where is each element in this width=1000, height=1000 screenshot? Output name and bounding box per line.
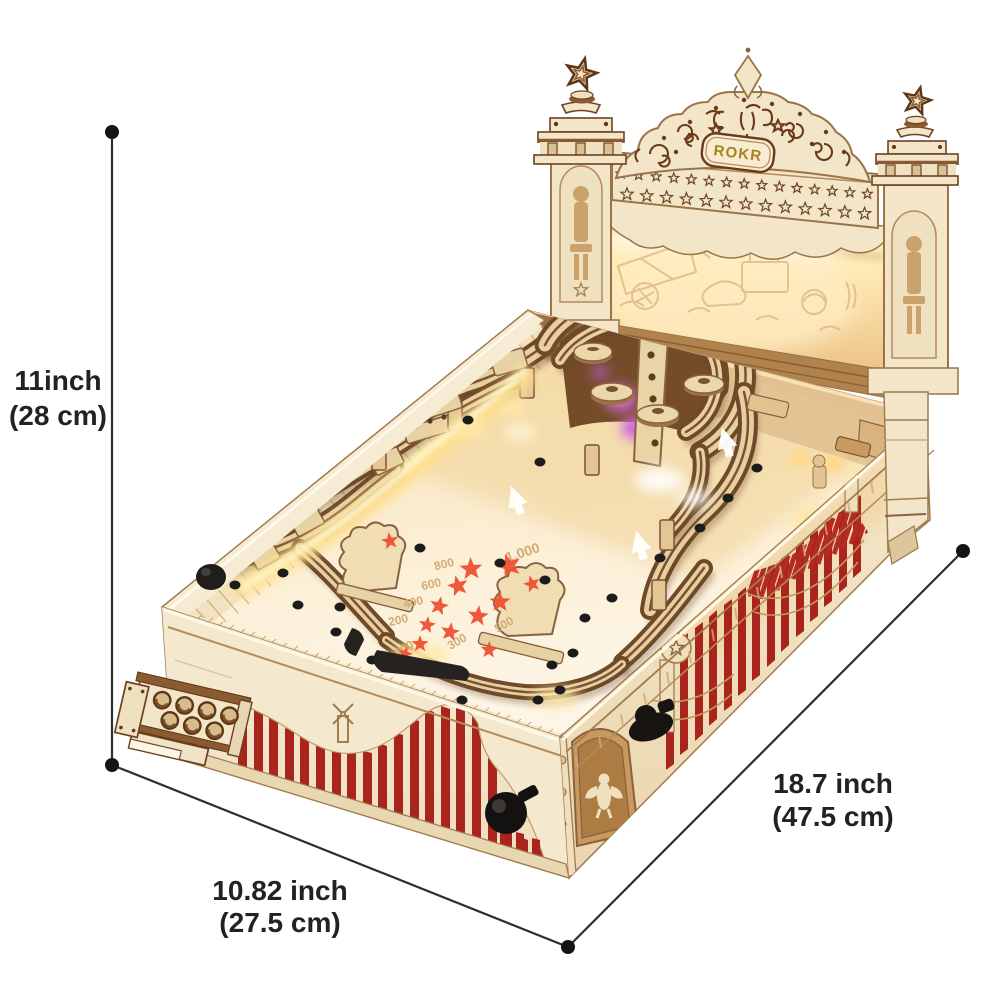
svg-text:18.7 inch: 18.7 inch xyxy=(773,768,893,799)
svg-text:(27.5 cm): (27.5 cm) xyxy=(219,907,340,938)
svg-text:10.82 inch: 10.82 inch xyxy=(212,875,347,906)
svg-text:(28 cm): (28 cm) xyxy=(9,400,107,431)
svg-text:(47.5 cm): (47.5 cm) xyxy=(772,801,893,832)
svg-text:11inch: 11inch xyxy=(14,365,101,396)
